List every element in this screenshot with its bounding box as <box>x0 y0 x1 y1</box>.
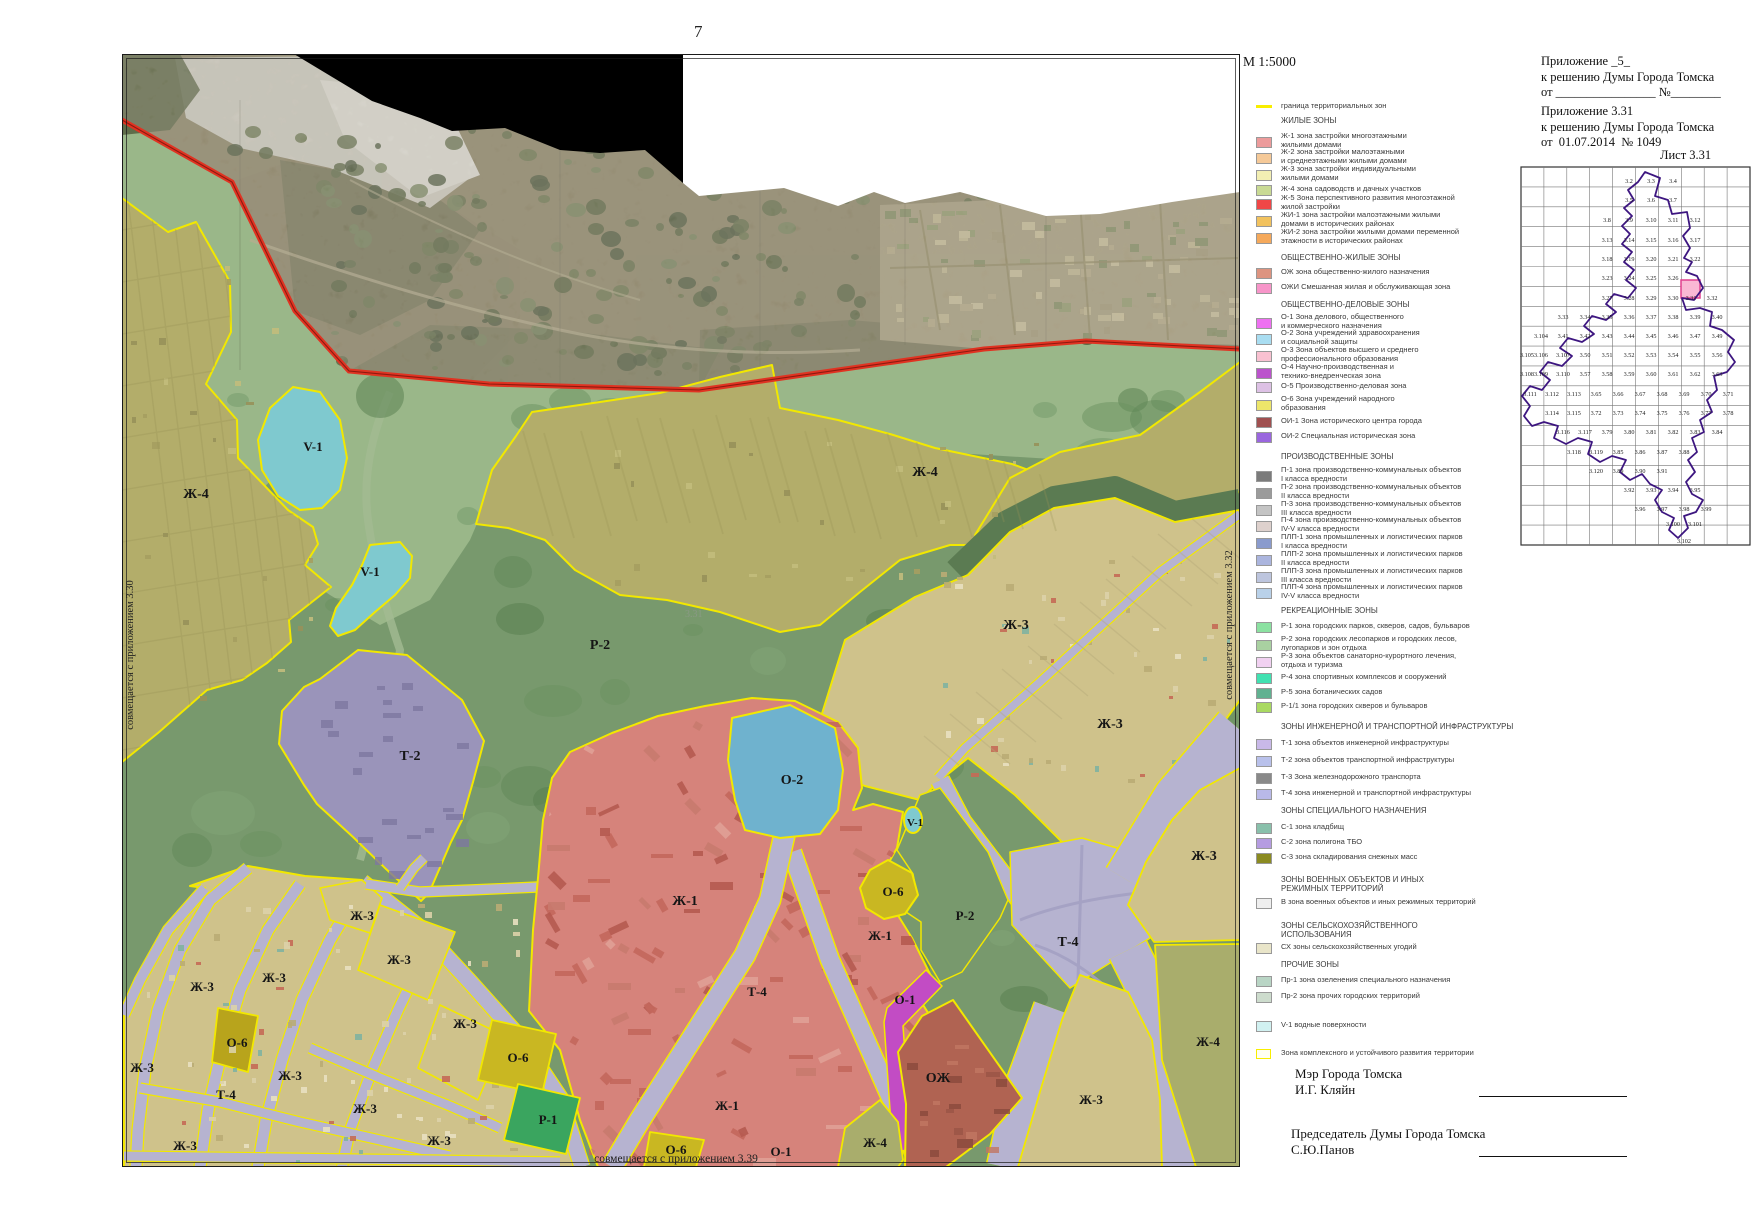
svg-text:3.62: 3.62 <box>1690 371 1701 378</box>
svg-text:3.82: 3.82 <box>1668 429 1679 436</box>
svg-text:Ж-1: Ж-1 <box>868 928 892 943</box>
svg-text:Ж-4: Ж-4 <box>863 1135 887 1150</box>
svg-text:3.15: 3.15 <box>1646 237 1657 244</box>
svg-text:3.4: 3.4 <box>1669 178 1677 185</box>
svg-text:3.94: 3.94 <box>1668 487 1679 494</box>
svg-text:Ж-3: Ж-3 <box>190 979 214 994</box>
svg-text:О-1: О-1 <box>895 992 916 1007</box>
svg-text:3.41: 3.41 <box>1558 333 1569 340</box>
svg-text:3.68: 3.68 <box>1657 391 1668 398</box>
svg-text:3.38: 3.38 <box>1668 314 1679 321</box>
svg-text:3.120: 3.120 <box>1589 468 1603 475</box>
svg-text:3.99: 3.99 <box>1701 506 1712 513</box>
svg-text:3.45: 3.45 <box>1646 333 1657 340</box>
svg-text:Т-4: Т-4 <box>1058 935 1079 950</box>
svg-text:Ж-3: Ж-3 <box>130 1060 154 1075</box>
svg-text:3.69: 3.69 <box>1679 391 1690 398</box>
svg-text:Ж-3: Ж-3 <box>350 908 374 923</box>
svg-text:3.119: 3.119 <box>1589 449 1603 456</box>
svg-text:3.16: 3.16 <box>1668 237 1679 244</box>
svg-text:Ж-3: Ж-3 <box>387 952 411 967</box>
svg-text:3.105: 3.105 <box>1520 352 1534 359</box>
svg-text:3.100: 3.100 <box>1666 521 1680 528</box>
svg-text:Ж-4: Ж-4 <box>1196 1034 1220 1049</box>
svg-text:3.25: 3.25 <box>1646 275 1657 282</box>
svg-text:3.2: 3.2 <box>1625 178 1633 185</box>
svg-text:3.57: 3.57 <box>1580 371 1591 378</box>
svg-text:3.85: 3.85 <box>1613 449 1624 456</box>
svg-text:3.21: 3.21 <box>1668 256 1679 263</box>
svg-text:3.24: 3.24 <box>1624 275 1635 282</box>
svg-text:совмещается с приложением 3.39: совмещается с приложением 3.39 <box>594 1153 758 1165</box>
svg-text:3.39: 3.39 <box>1690 314 1701 321</box>
svg-text:3.31: 3.31 <box>685 609 703 620</box>
svg-text:V-1: V-1 <box>303 439 322 454</box>
svg-text:3.74: 3.74 <box>1635 410 1646 417</box>
svg-text:3.55: 3.55 <box>1690 352 1701 359</box>
svg-text:3.53: 3.53 <box>1646 352 1657 359</box>
svg-text:3.114: 3.114 <box>1545 410 1559 417</box>
svg-text:3.5: 3.5 <box>1625 197 1633 204</box>
svg-text:3.92: 3.92 <box>1624 487 1635 494</box>
svg-text:3.34: 3.34 <box>1580 314 1591 321</box>
svg-text:3.12: 3.12 <box>1690 217 1701 224</box>
svg-text:3.91: 3.91 <box>1657 468 1668 475</box>
svg-text:3.72: 3.72 <box>1591 410 1602 417</box>
svg-text:3.113: 3.113 <box>1567 391 1581 398</box>
svg-text:3.29: 3.29 <box>1646 295 1657 302</box>
svg-text:3.37: 3.37 <box>1646 314 1657 321</box>
svg-text:3.14: 3.14 <box>1624 237 1635 244</box>
svg-text:3.104: 3.104 <box>1534 333 1548 340</box>
svg-text:3.42: 3.42 <box>1580 333 1591 340</box>
svg-text:3.52: 3.52 <box>1624 352 1635 359</box>
svg-text:3.44: 3.44 <box>1624 333 1635 340</box>
svg-text:3.107: 3.107 <box>1556 352 1570 359</box>
svg-text:3.117: 3.117 <box>1578 429 1592 436</box>
svg-text:Ж-3: Ж-3 <box>427 1133 451 1148</box>
svg-text:Ж-3: Ж-3 <box>262 970 286 985</box>
svg-text:3.63: 3.63 <box>1712 371 1723 378</box>
svg-text:3.36: 3.36 <box>1624 314 1635 321</box>
svg-text:3.79: 3.79 <box>1602 429 1613 436</box>
svg-text:3.17: 3.17 <box>1690 237 1701 244</box>
svg-text:3.89: 3.89 <box>1613 468 1624 475</box>
svg-text:3.76: 3.76 <box>1679 410 1690 417</box>
svg-text:3.112: 3.112 <box>1545 391 1559 398</box>
svg-text:3.78: 3.78 <box>1723 410 1734 417</box>
svg-text:Ж-3: Ж-3 <box>1079 1092 1103 1107</box>
svg-text:3.58: 3.58 <box>1602 371 1613 378</box>
svg-text:3.18: 3.18 <box>1602 256 1613 263</box>
svg-text:3.30: 3.30 <box>1668 295 1679 302</box>
svg-text:3.108: 3.108 <box>1520 371 1534 378</box>
svg-text:совмещается с приложением 3.32: совмещается с приложением 3.32 <box>1224 550 1235 700</box>
svg-text:ОЖ: ОЖ <box>926 1071 951 1086</box>
svg-text:3.20: 3.20 <box>1646 256 1657 263</box>
svg-text:Ж-3: Ж-3 <box>1191 849 1217 864</box>
svg-text:3.47: 3.47 <box>1690 333 1701 340</box>
svg-text:3.111: 3.111 <box>1523 391 1536 398</box>
svg-text:3.102: 3.102 <box>1677 538 1691 545</box>
svg-text:3.84: 3.84 <box>1712 429 1723 436</box>
svg-text:О-6: О-6 <box>227 1035 248 1050</box>
svg-text:Т-4: Т-4 <box>216 1087 236 1102</box>
svg-text:Ж-3: Ж-3 <box>173 1138 197 1153</box>
svg-text:3.109: 3.109 <box>1534 371 1548 378</box>
svg-text:3.87: 3.87 <box>1657 449 1668 456</box>
svg-text:3.49: 3.49 <box>1712 333 1723 340</box>
svg-text:3.88: 3.88 <box>1679 449 1690 456</box>
svg-text:3.10: 3.10 <box>1646 217 1657 224</box>
svg-text:3.75: 3.75 <box>1657 410 1668 417</box>
svg-text:3.77: 3.77 <box>1701 410 1712 417</box>
svg-text:3.67: 3.67 <box>1635 391 1646 398</box>
svg-text:3.35: 3.35 <box>1602 314 1613 321</box>
svg-text:3.54: 3.54 <box>1668 352 1679 359</box>
svg-text:О-6: О-6 <box>883 884 904 899</box>
svg-text:3.50: 3.50 <box>1580 352 1591 359</box>
svg-text:3.8: 3.8 <box>1603 217 1611 224</box>
svg-text:3.19: 3.19 <box>1624 256 1635 263</box>
svg-text:3.23: 3.23 <box>1602 275 1613 282</box>
svg-text:3.97: 3.97 <box>1657 506 1668 513</box>
svg-text:3.65: 3.65 <box>1591 391 1602 398</box>
svg-text:Ж-1: Ж-1 <box>672 894 698 909</box>
svg-text:3.96: 3.96 <box>1635 506 1646 513</box>
svg-text:3.101: 3.101 <box>1688 521 1702 528</box>
svg-text:3.33: 3.33 <box>1558 314 1569 321</box>
svg-text:V-1: V-1 <box>360 564 379 579</box>
svg-text:3.9: 3.9 <box>1625 217 1633 224</box>
svg-text:3.46: 3.46 <box>1668 333 1679 340</box>
svg-text:Т-2: Т-2 <box>400 749 421 764</box>
svg-text:3.116: 3.116 <box>1556 429 1570 436</box>
svg-text:О-2: О-2 <box>781 773 804 788</box>
svg-text:Т-4: Т-4 <box>747 984 767 999</box>
svg-text:О-1: О-1 <box>771 1144 792 1159</box>
svg-text:О-6: О-6 <box>508 1050 529 1065</box>
svg-text:3.28: 3.28 <box>1624 295 1635 302</box>
svg-text:Ж-1: Ж-1 <box>715 1098 739 1113</box>
svg-text:Ж-3: Ж-3 <box>453 1016 477 1031</box>
svg-text:3.110: 3.110 <box>1556 371 1570 378</box>
svg-text:Ж-3: Ж-3 <box>1097 717 1123 732</box>
svg-text:Ж-4: Ж-4 <box>183 487 209 502</box>
svg-text:3.98: 3.98 <box>1679 506 1690 513</box>
svg-text:Р-2: Р-2 <box>590 638 610 653</box>
svg-text:Ж-4: Ж-4 <box>912 465 938 480</box>
svg-text:3.32: 3.32 <box>1707 295 1718 302</box>
svg-text:3.13: 3.13 <box>1602 237 1613 244</box>
svg-text:3.7: 3.7 <box>1669 197 1677 204</box>
svg-text:3.40: 3.40 <box>1712 314 1723 321</box>
svg-text:3.56: 3.56 <box>1712 352 1723 359</box>
svg-text:Р-1: Р-1 <box>539 1112 558 1127</box>
svg-text:3.80: 3.80 <box>1624 429 1635 436</box>
svg-text:3.11: 3.11 <box>1668 217 1679 224</box>
svg-text:3.59: 3.59 <box>1624 371 1635 378</box>
svg-text:3.115: 3.115 <box>1567 410 1581 417</box>
svg-text:3.83: 3.83 <box>1690 429 1701 436</box>
svg-text:Ж-3: Ж-3 <box>278 1068 302 1083</box>
svg-text:3.106: 3.106 <box>1534 352 1548 359</box>
svg-text:Р-2: Р-2 <box>956 908 975 923</box>
svg-text:3.6: 3.6 <box>1647 197 1655 204</box>
svg-text:3.60: 3.60 <box>1646 371 1657 378</box>
svg-text:3.66: 3.66 <box>1613 391 1624 398</box>
svg-text:Ж-3: Ж-3 <box>1003 618 1029 633</box>
svg-text:3.22: 3.22 <box>1690 256 1701 263</box>
svg-text:3.71: 3.71 <box>1723 391 1734 398</box>
svg-text:3.73: 3.73 <box>1613 410 1624 417</box>
svg-text:3.93: 3.93 <box>1646 487 1657 494</box>
svg-text:3.95: 3.95 <box>1690 487 1701 494</box>
svg-text:3.31: 3.31 <box>1686 295 1697 302</box>
svg-text:V-1: V-1 <box>907 817 923 829</box>
svg-text:3.43: 3.43 <box>1602 333 1613 340</box>
svg-text:3.90: 3.90 <box>1635 468 1646 475</box>
svg-text:3.27: 3.27 <box>1602 295 1613 302</box>
svg-text:3.86: 3.86 <box>1635 449 1646 456</box>
svg-text:3.70: 3.70 <box>1701 391 1712 398</box>
svg-text:3.61: 3.61 <box>1668 371 1679 378</box>
svg-text:3.81: 3.81 <box>1646 429 1657 436</box>
svg-text:3.118: 3.118 <box>1567 449 1581 456</box>
svg-text:3.26: 3.26 <box>1668 275 1679 282</box>
svg-text:Ж-3: Ж-3 <box>353 1101 377 1116</box>
svg-text:3.51: 3.51 <box>1602 352 1613 359</box>
svg-text:3.3: 3.3 <box>1647 178 1655 185</box>
